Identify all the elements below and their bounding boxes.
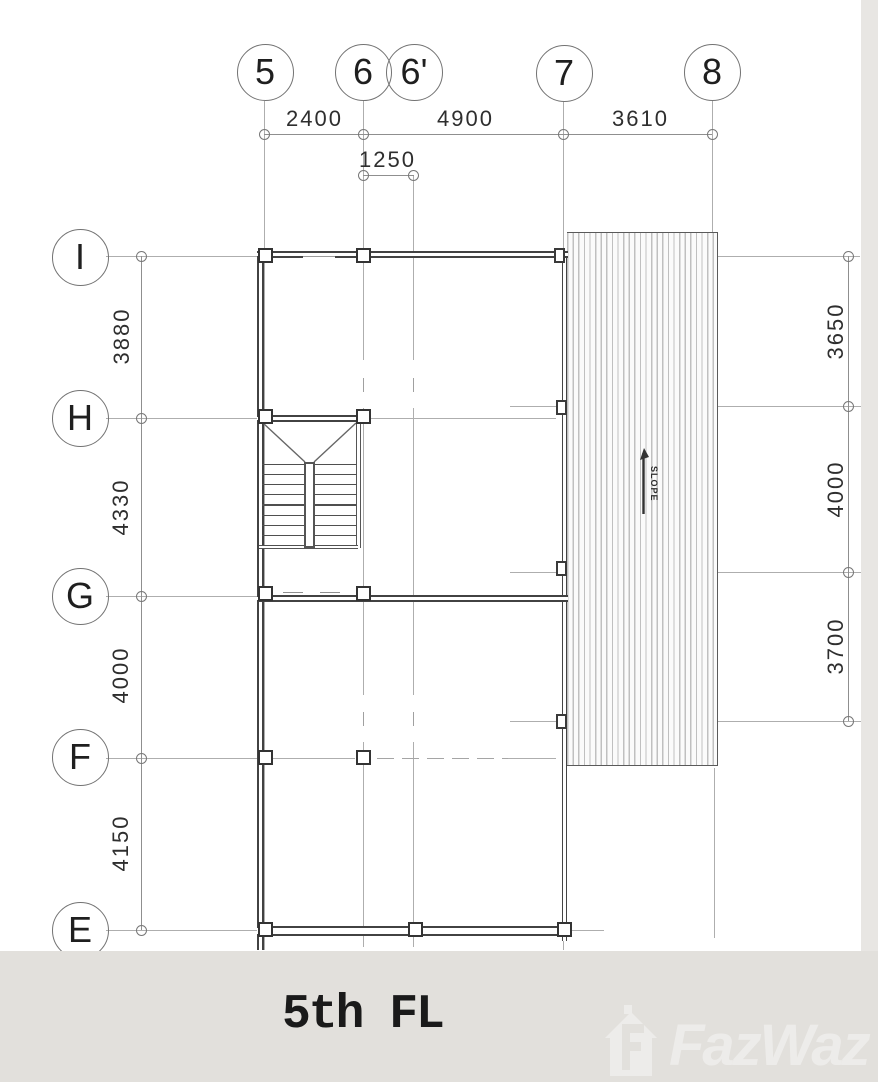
svg-text:FazWaz: FazWaz xyxy=(669,1013,871,1078)
